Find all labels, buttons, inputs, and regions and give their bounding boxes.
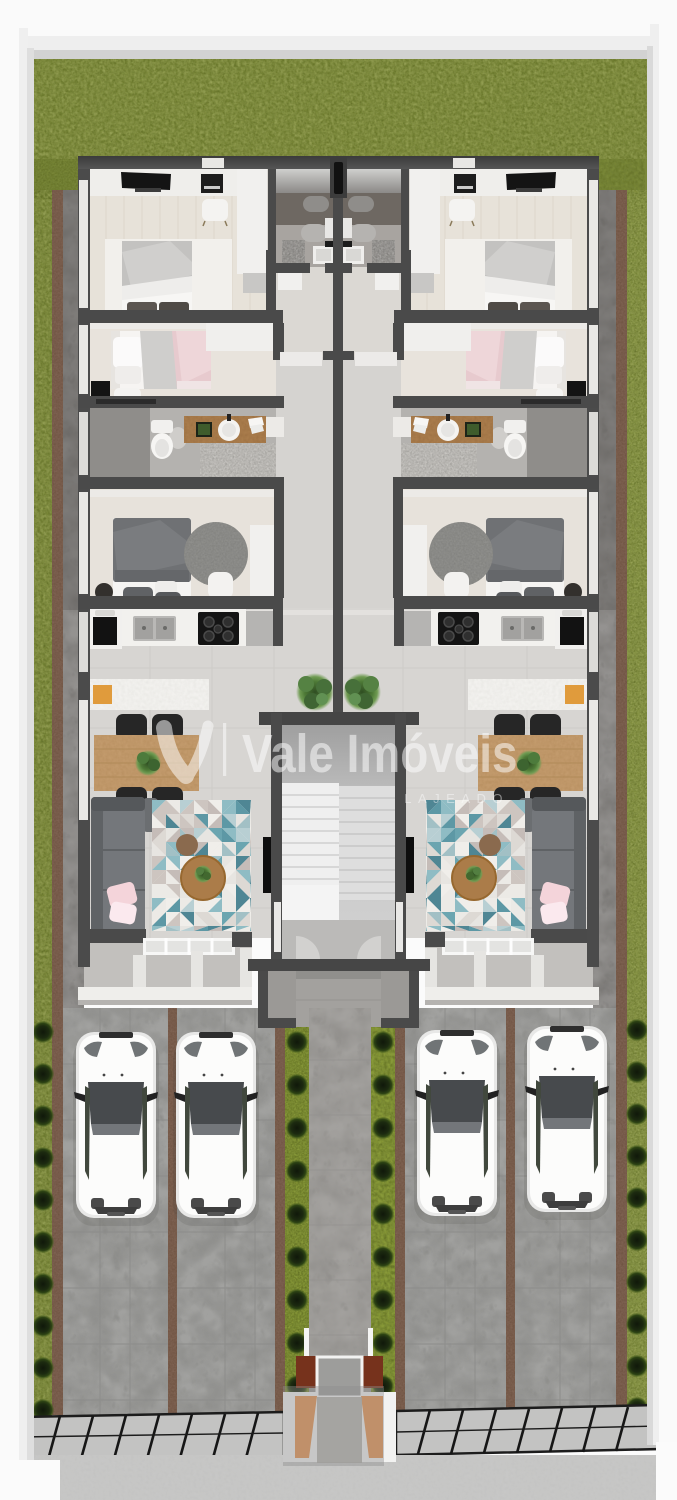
svg-text:Vale Imóveis: Vale Imóveis	[242, 724, 518, 784]
svg-text:LAJEADO: LAJEADO	[404, 791, 509, 806]
